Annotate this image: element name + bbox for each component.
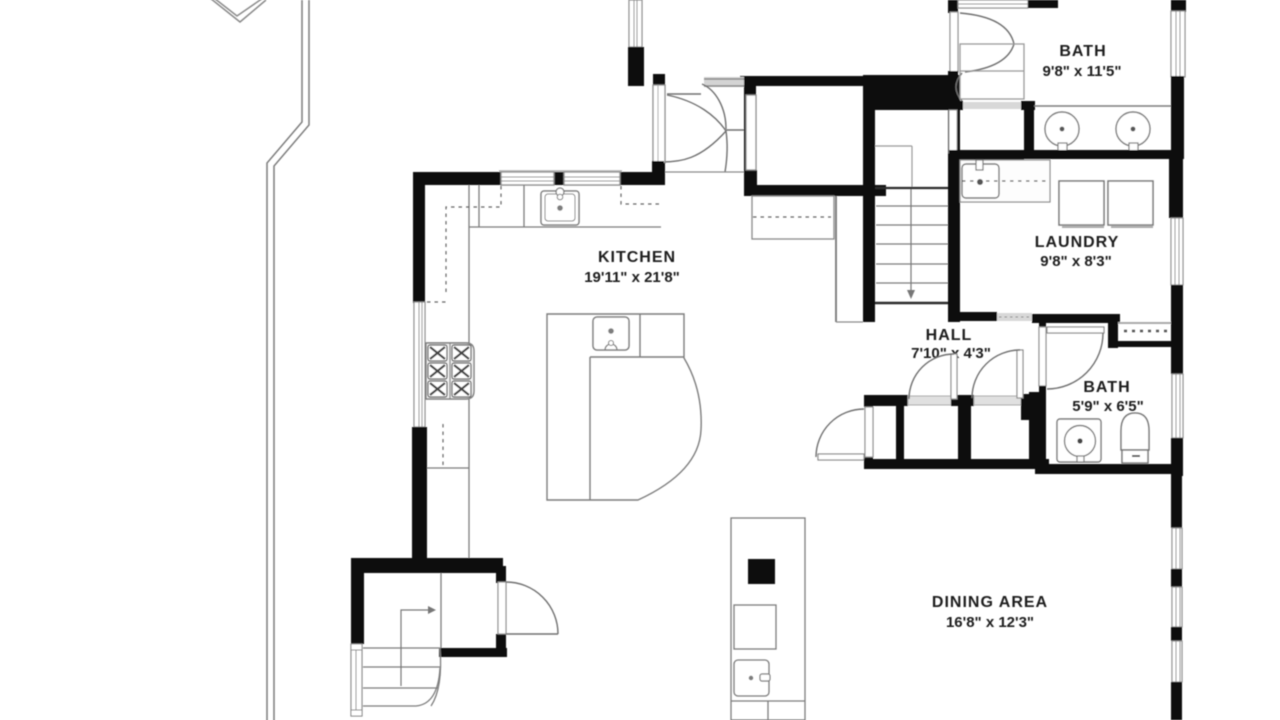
svg-text:DINING AREA: DINING AREA	[932, 594, 1048, 611]
svg-text:BATH: BATH	[1083, 379, 1130, 396]
svg-text:9'8" x 11'5": 9'8" x 11'5"	[1043, 63, 1122, 80]
svg-text:16'8" x 12'3": 16'8" x 12'3"	[946, 614, 1034, 631]
svg-text:BATH: BATH	[1059, 43, 1106, 60]
svg-text:LAUNDRY: LAUNDRY	[1035, 234, 1120, 251]
svg-text:KITCHEN: KITCHEN	[598, 249, 676, 266]
svg-text:HALL: HALL	[926, 327, 973, 344]
svg-text:9'8" x 8'3": 9'8" x 8'3"	[1040, 253, 1111, 270]
svg-text:19'11" x 21'8": 19'11" x 21'8"	[584, 269, 680, 286]
